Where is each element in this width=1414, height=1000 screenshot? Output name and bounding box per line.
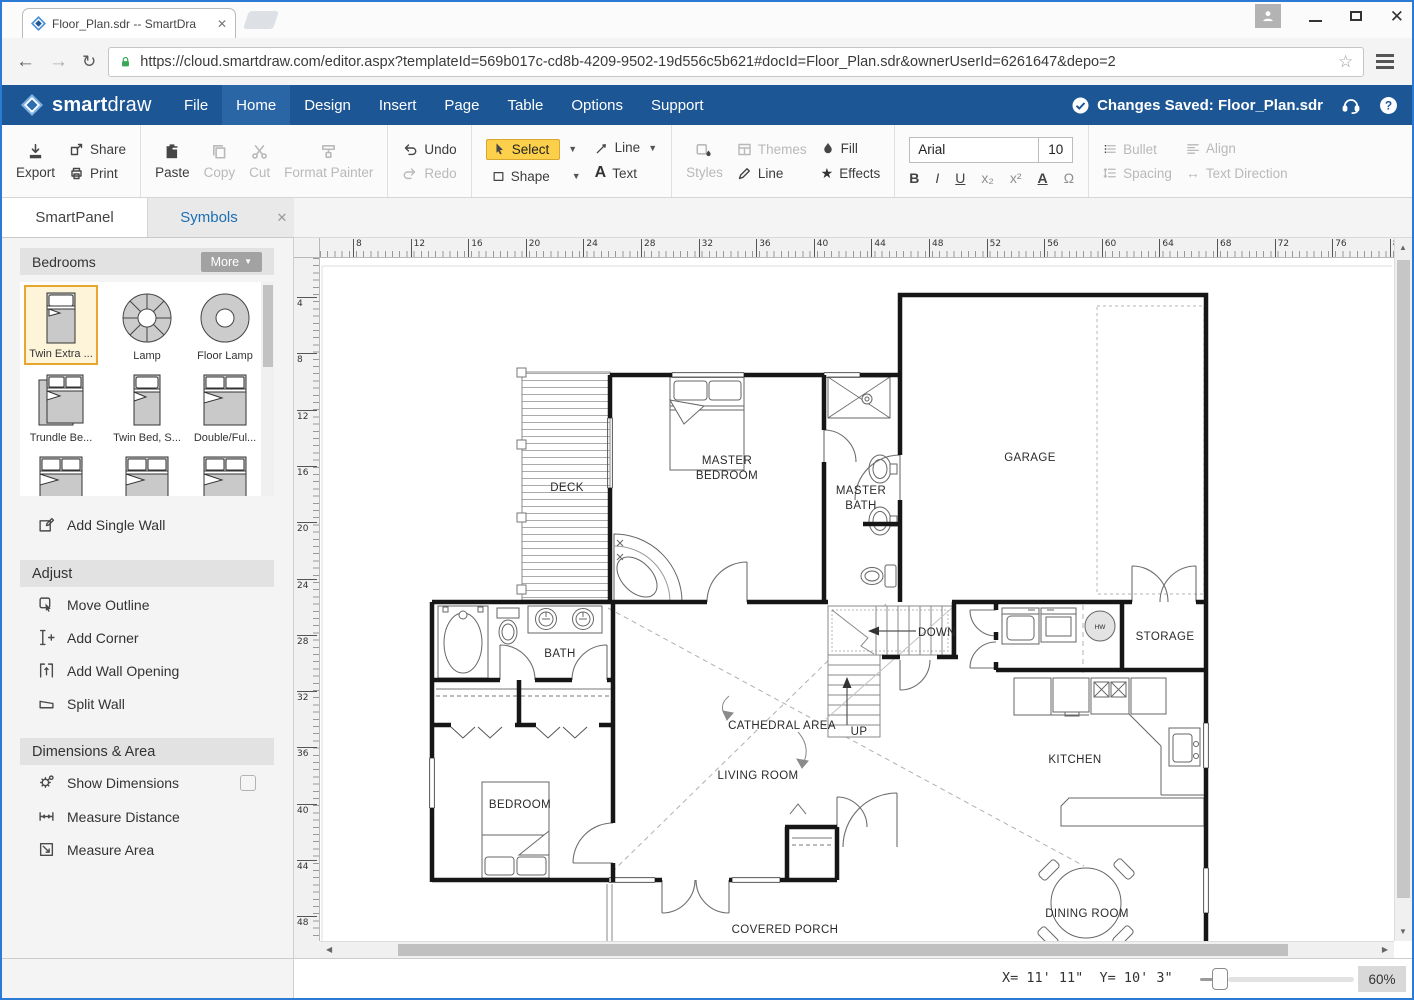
- symbol-bed-8[interactable]: [110, 449, 184, 496]
- effects-star-icon: ★: [821, 165, 834, 182]
- browser-tab[interactable]: Floor_Plan.sdr -- SmartDra ✕: [22, 8, 236, 38]
- show-dimensions-checkbox[interactable]: [240, 775, 256, 791]
- add-wall-opening-icon: [38, 662, 55, 679]
- svg-text:STORAGE: STORAGE: [1136, 631, 1195, 643]
- print-button[interactable]: Print: [69, 166, 126, 181]
- menu-page[interactable]: Page: [430, 85, 493, 125]
- cut-icon: [251, 143, 268, 160]
- symbol-scrollbar[interactable]: [261, 282, 274, 496]
- themes-button[interactable]: Themes: [737, 142, 807, 157]
- tab-close-icon[interactable]: ✕: [217, 17, 227, 31]
- add-wall-opening-button[interactable]: Add Wall Opening: [2, 662, 294, 679]
- tab-title: Floor_Plan.sdr -- SmartDra: [52, 17, 211, 31]
- text-tool-button[interactable]: A Text: [595, 164, 657, 182]
- svg-text:BATH: BATH: [544, 648, 575, 660]
- entry-closet-detail: [790, 804, 832, 845]
- shape-tool-button[interactable]: Shape: [486, 169, 550, 184]
- styles-button[interactable]: Styles: [686, 142, 723, 180]
- symbol-bed-7[interactable]: [24, 449, 98, 496]
- measure-area-icon: [38, 841, 55, 858]
- toolbar: Export Share Print Paste Copy: [2, 125, 1412, 198]
- adjust-section-header: Adjust: [20, 560, 274, 587]
- redo-icon: [402, 166, 418, 181]
- undo-icon: [402, 142, 418, 157]
- bullet-icon: [1103, 142, 1117, 156]
- svg-text:GARAGE: GARAGE: [1004, 452, 1056, 464]
- line-dropdown-icon[interactable]: ▼: [648, 143, 657, 153]
- url-text: https://cloud.smartdraw.com/editor.aspx?…: [140, 54, 1330, 70]
- font-size-field[interactable]: 10: [1039, 137, 1073, 163]
- hw-tank-label: HW: [1095, 624, 1107, 631]
- text-direction-icon: ↔: [1186, 165, 1200, 181]
- more-button[interactable]: More▼: [201, 252, 262, 272]
- help-icon[interactable]: ?: [1379, 96, 1398, 115]
- smartdraw-favicon: [31, 16, 46, 31]
- bookmark-star-icon[interactable]: ☆: [1338, 52, 1353, 72]
- stairs: [826, 606, 953, 737]
- spacing-icon: [1103, 166, 1117, 180]
- svg-text:MASTER: MASTER: [836, 485, 886, 497]
- status-bar: X= 11' 11" Y= 10' 3" 60%: [2, 958, 1412, 998]
- menu-design[interactable]: Design: [290, 85, 365, 125]
- move-outline-icon: [38, 596, 55, 613]
- smartdraw-logo-icon: [20, 93, 44, 117]
- horizontal-scrollbar[interactable]: ◀ ▶: [320, 941, 1394, 958]
- measure-distance-button[interactable]: Measure Distance: [2, 808, 294, 825]
- split-wall-button[interactable]: Split Wall: [2, 695, 294, 712]
- support-headset-icon[interactable]: [1341, 95, 1361, 115]
- browser-window: Floor_Plan.sdr -- SmartDra ✕ ✕ ← → ↻ htt…: [0, 0, 1414, 1000]
- add-corner-icon: [38, 629, 55, 646]
- master-bath-fixtures: [828, 377, 897, 587]
- print-icon: [69, 166, 84, 181]
- bedroom-bed: [482, 782, 549, 878]
- copy-icon: [211, 143, 228, 160]
- svg-text:DOWN: DOWN: [918, 627, 956, 639]
- drawing-page[interactable]: HW DECKMASTERBEDROOMMASTERBATHGARAGEBATH…: [320, 258, 1394, 941]
- saved-check-icon: [1072, 97, 1089, 114]
- select-dropdown-icon[interactable]: ▼: [568, 144, 577, 154]
- smartpanel-sidebar: SmartPanel Symbols ✕ Bedrooms More▼ Twin…: [2, 198, 294, 958]
- select-cursor-icon: [493, 142, 506, 156]
- ruler-vertical: 4812162024283236404448: [294, 258, 320, 958]
- paste-icon: [163, 142, 181, 160]
- line-tool-button[interactable]: Line: [595, 140, 641, 155]
- smartdraw-logo[interactable]: smartdraw: [20, 93, 170, 117]
- svg-text:BEDROOM: BEDROOM: [696, 470, 758, 482]
- symbol-twin-extra[interactable]: Twin Extra ...: [24, 285, 98, 365]
- styles-icon: [695, 142, 713, 160]
- format-painter-icon: [320, 143, 337, 160]
- shape-icon: [492, 170, 505, 183]
- symbol-floor-lamp[interactable]: Floor Lamp: [188, 285, 262, 365]
- changes-saved-status: Changes Saved: Floor_Plan.sdr: [1072, 97, 1323, 114]
- bullet-button[interactable]: Bullet: [1103, 142, 1172, 157]
- align-icon: [1186, 142, 1200, 156]
- ruler-horizontal: 8121620242832364044485256606468727680: [320, 238, 1394, 258]
- menu-support[interactable]: Support: [637, 85, 718, 125]
- reload-icon[interactable]: ↻: [82, 52, 96, 72]
- shape-dropdown-icon[interactable]: ▼: [572, 171, 581, 181]
- line-style-button[interactable]: Line: [737, 166, 807, 181]
- zoom-slider-track[interactable]: [1228, 977, 1354, 982]
- symbol-grid: Twin Extra ... Lamp Floor Lamp Trundle B…: [20, 282, 274, 496]
- svg-text:MASTER: MASTER: [702, 455, 752, 467]
- symbol-double-bed[interactable]: Double/Ful...: [188, 367, 262, 447]
- add-corner-button[interactable]: Add Corner: [2, 629, 294, 646]
- svg-text:DINING ROOM: DINING ROOM: [1045, 908, 1129, 920]
- bath-fixtures: [438, 606, 602, 678]
- tab-strip: Floor_Plan.sdr -- SmartDra ✕ ✕: [2, 2, 1412, 38]
- cathedral-arrows: [722, 696, 808, 768]
- svg-text:UP: UP: [851, 726, 868, 738]
- copy-button[interactable]: Copy: [204, 143, 236, 180]
- select-tool-button[interactable]: Select: [486, 139, 561, 160]
- back-icon[interactable]: ←: [16, 51, 35, 73]
- svg-text:LIVING ROOM: LIVING ROOM: [717, 770, 798, 782]
- subscript-button[interactable]: x₂: [981, 170, 993, 186]
- maximize-button[interactable]: [1350, 11, 1362, 21]
- format-painter-button[interactable]: Format Painter: [284, 143, 373, 180]
- close-button[interactable]: ✕: [1390, 8, 1404, 25]
- symbol-button[interactable]: Ω: [1064, 170, 1074, 186]
- profile-icon[interactable]: [1255, 4, 1281, 28]
- share-icon: [69, 142, 84, 157]
- cursor-coordinates: X= 11' 11" Y= 10' 3": [1002, 970, 1173, 986]
- forward-icon[interactable]: →: [49, 51, 68, 73]
- svg-text:CATHEDRAL AREA: CATHEDRAL AREA: [728, 720, 836, 732]
- menu-file[interactable]: File: [170, 85, 222, 125]
- svg-text:BATH: BATH: [845, 500, 876, 512]
- export-button[interactable]: Export: [16, 143, 55, 180]
- zoom-level-badge: 60%: [1358, 966, 1406, 992]
- category-bar: Bedrooms More▼: [20, 248, 274, 275]
- bold-button[interactable]: B: [909, 170, 919, 186]
- split-wall-icon: [38, 695, 55, 712]
- cut-button[interactable]: Cut: [249, 143, 270, 180]
- category-label: Bedrooms: [32, 254, 96, 270]
- kitchen-counters: [1014, 678, 1204, 826]
- garage-bay-outline: [1097, 306, 1204, 594]
- redo-button[interactable]: Redo: [402, 166, 456, 181]
- undo-button[interactable]: Undo: [402, 142, 456, 157]
- align-button[interactable]: Align: [1186, 141, 1288, 156]
- spacing-button[interactable]: Spacing: [1103, 166, 1172, 181]
- symbol-lamp[interactable]: Lamp: [110, 285, 184, 365]
- floor-plan[interactable]: HW DECKMASTERBEDROOMMASTERBATHGARAGEBATH…: [320, 258, 1394, 941]
- ruler-corner: [294, 238, 320, 258]
- url-field[interactable]: https://cloud.smartdraw.com/editor.aspx?…: [108, 47, 1364, 77]
- tab-symbols[interactable]: Symbols: [148, 198, 270, 237]
- panel-close-icon[interactable]: ✕: [270, 198, 294, 237]
- svg-text:KITCHEN: KITCHEN: [1048, 754, 1101, 766]
- add-single-wall-button[interactable]: Add Single Wall: [2, 516, 294, 533]
- svg-text:?: ?: [1385, 99, 1392, 112]
- export-icon: [27, 143, 44, 160]
- paste-button[interactable]: Paste: [155, 142, 190, 180]
- text-direction-button[interactable]: ↔ Text Direction: [1186, 165, 1288, 181]
- app-menubar: smartdraw File Home Design Insert Page T…: [2, 85, 1412, 125]
- fill-button[interactable]: Fill: [821, 141, 881, 156]
- themes-icon: [737, 142, 752, 157]
- svg-text:DECK: DECK: [550, 482, 584, 494]
- symbol-twin-bed[interactable]: Twin Bed, S...: [110, 367, 184, 447]
- corner-tub: [609, 534, 682, 605]
- move-outline-button[interactable]: Move Outline: [2, 596, 294, 613]
- effects-button[interactable]: ★ Effects: [821, 165, 881, 182]
- add-wall-pencil-icon: [38, 516, 55, 533]
- measure-area-button[interactable]: Measure Area: [2, 841, 294, 858]
- url-row: ← → ↻ https://cloud.smartdraw.com/editor…: [2, 38, 1412, 85]
- brand-text: smartdraw: [52, 94, 152, 117]
- measure-distance-icon: [38, 808, 55, 825]
- share-button[interactable]: Share: [69, 142, 126, 157]
- menu-icon[interactable]: [1376, 54, 1394, 69]
- minimize-button[interactable]: [1309, 20, 1322, 22]
- closets: [436, 689, 611, 738]
- svg-text:BEDROOM: BEDROOM: [489, 799, 551, 811]
- padlock-icon: [119, 55, 132, 69]
- menu-table[interactable]: Table: [493, 85, 557, 125]
- new-tab-button[interactable]: [243, 11, 279, 29]
- line-style-icon: [737, 166, 752, 181]
- vertical-scrollbar[interactable]: ▲ ▼: [1394, 238, 1412, 941]
- symbol-trundle-bed[interactable]: Trundle Be...: [24, 367, 98, 447]
- svg-text:COVERED PORCH: COVERED PORCH: [732, 924, 839, 936]
- fill-icon: [821, 141, 835, 156]
- font-name-field[interactable]: Arial: [909, 137, 1039, 163]
- font-color-button[interactable]: A: [1038, 170, 1048, 186]
- zoom-slider-handle[interactable]: [1212, 968, 1228, 990]
- gear-icon: [38, 774, 55, 791]
- symbol-bed-9[interactable]: [188, 449, 262, 496]
- line-tool-icon: [595, 141, 609, 155]
- menu-options[interactable]: Options: [557, 85, 637, 125]
- underline-button[interactable]: U: [955, 170, 965, 186]
- superscript-button[interactable]: x²: [1010, 170, 1022, 186]
- canvas-area: 8121620242832364044485256606468727680 48…: [294, 198, 1412, 958]
- show-dimensions-button[interactable]: Show Dimensions: [2, 774, 294, 791]
- tab-smartpanel[interactable]: SmartPanel: [2, 198, 148, 237]
- menu-home[interactable]: Home: [222, 85, 290, 125]
- dimensions-section-header: Dimensions & Area: [20, 738, 274, 765]
- dining-table: [1037, 858, 1136, 941]
- porch-post: [607, 884, 612, 941]
- menu-insert[interactable]: Insert: [365, 85, 431, 125]
- italic-button[interactable]: I: [935, 170, 939, 186]
